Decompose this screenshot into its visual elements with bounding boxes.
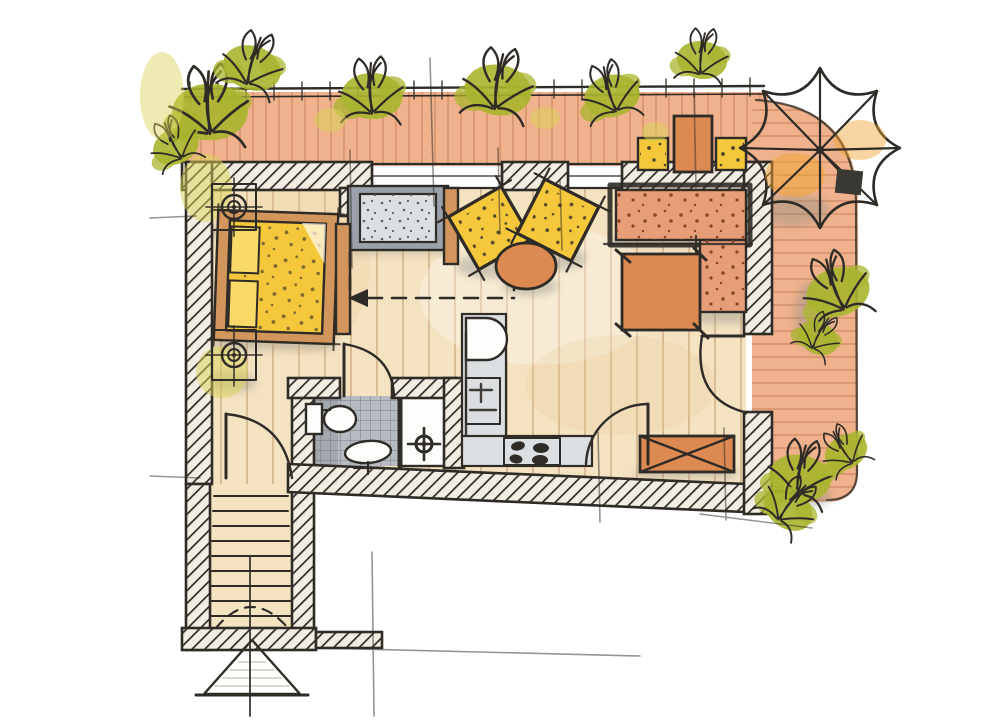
wall-stair-stub — [316, 632, 382, 648]
foliage-tint — [140, 52, 184, 140]
outdoor-table — [674, 116, 712, 172]
storage-chest — [640, 436, 734, 472]
wall-bathroom-north-west — [288, 378, 340, 398]
toilet — [306, 404, 356, 434]
foliage-tint — [314, 108, 346, 132]
sketch-page — [0, 0, 1000, 724]
parasol — [740, 68, 900, 228]
burner — [533, 443, 549, 453]
foliage-tint — [530, 107, 560, 129]
kitchen-counter — [462, 436, 592, 466]
window-band-west — [372, 164, 502, 188]
burner — [532, 455, 548, 465]
floor-plan-drawing — [0, 0, 1000, 724]
wall-stair-west — [186, 484, 210, 650]
dresser-stipple — [360, 194, 436, 242]
double-bed — [208, 204, 345, 351]
kitchen-sink — [466, 318, 507, 360]
coffee-table — [622, 254, 700, 330]
pillow — [228, 280, 258, 327]
foliage-tint — [642, 122, 668, 142]
outdoor-chair — [638, 138, 668, 170]
parasol-base — [835, 169, 863, 196]
round-side-table — [496, 243, 556, 289]
bush — [668, 24, 735, 88]
wardrobe-panel-west — [336, 224, 350, 334]
outdoor-chair — [716, 138, 746, 170]
